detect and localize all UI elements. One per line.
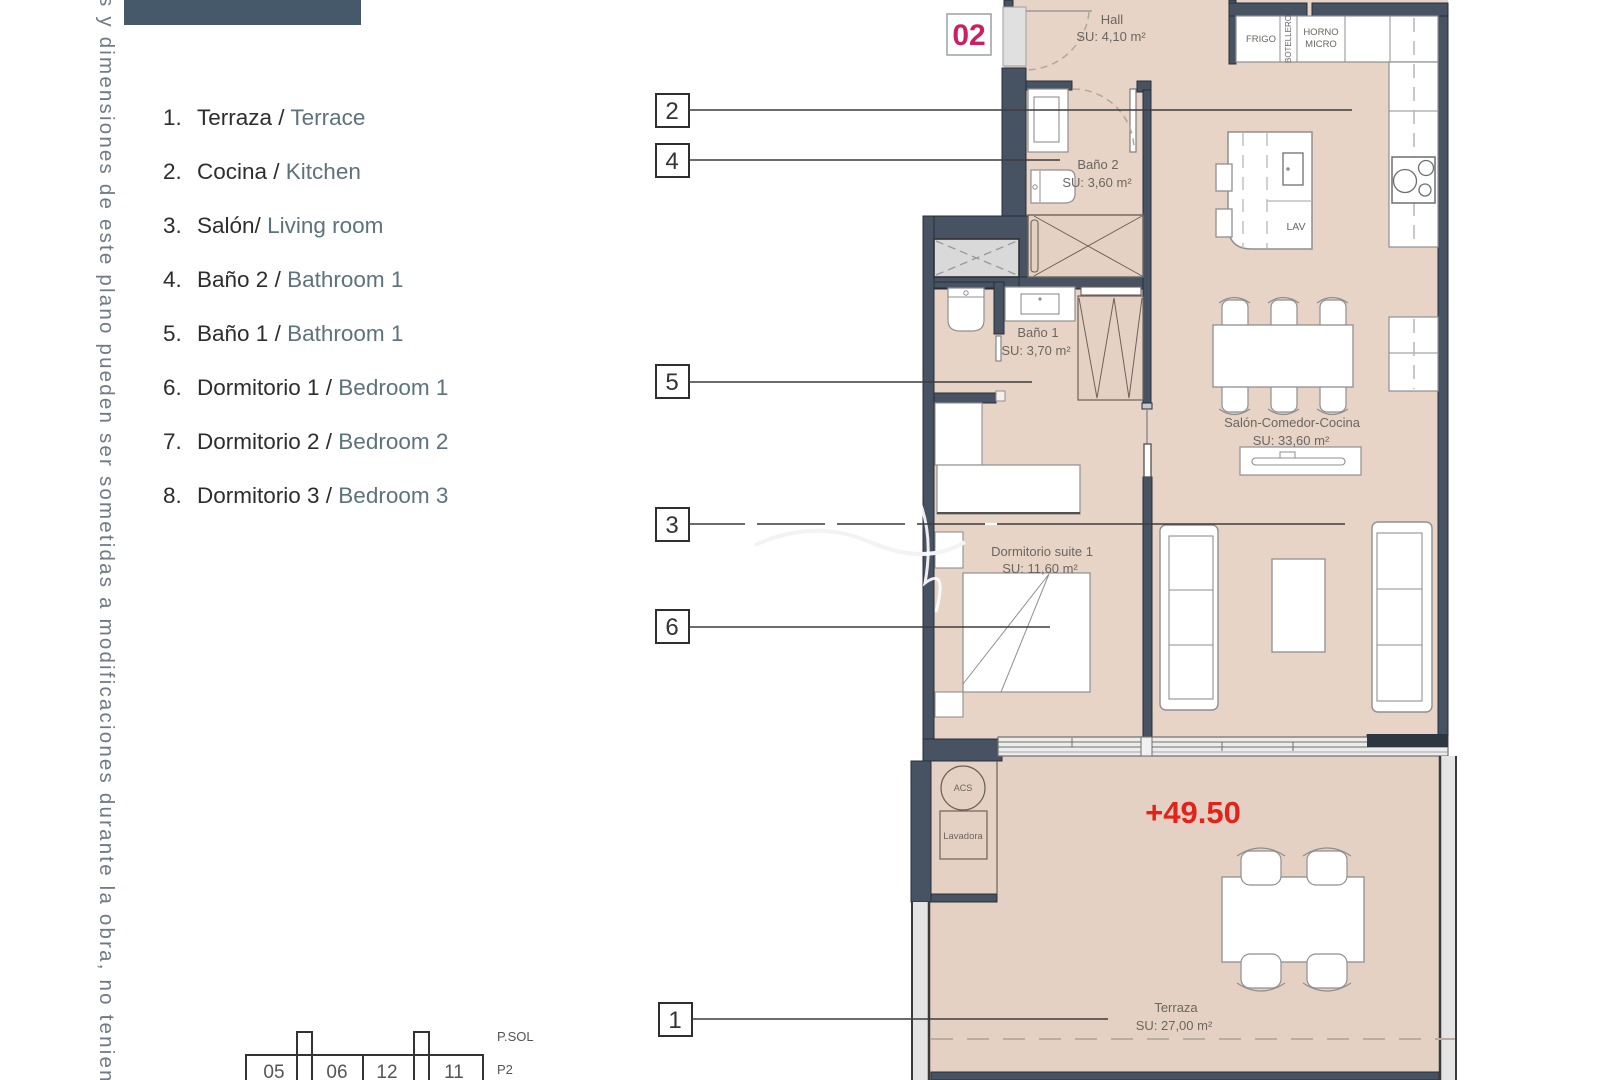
svg-text:12: 12 [376,1062,397,1080]
svg-text:02: 02 [952,19,985,52]
svg-text:1.: 1. [163,105,182,130]
svg-text:SU: 3,60 m²: SU: 3,60 m² [1062,175,1132,190]
svg-text:5.: 5. [163,321,182,346]
svg-text:LAV: LAV [1286,221,1305,233]
svg-text:Cocina / Kitchen: Cocina / Kitchen [197,159,361,184]
svg-text:ACS: ACS [954,783,973,793]
svg-text:8.: 8. [163,483,182,508]
svg-text:Baño 1: Baño 1 [1017,325,1058,340]
svg-text:2.: 2. [163,159,182,184]
svg-text:4.: 4. [163,267,182,292]
svg-text:06: 06 [326,1062,347,1080]
svg-text:1: 1 [668,1007,681,1034]
svg-text:SU: 27,00 m²: SU: 27,00 m² [1136,1018,1213,1033]
svg-text:Lavadora: Lavadora [943,831,983,842]
svg-text:Baño 1 / Bathroom 1: Baño 1 / Bathroom 1 [197,321,403,346]
svg-text:BOTELLERO: BOTELLERO [1284,15,1293,63]
svg-text:6.: 6. [163,375,182,400]
svg-text:Dormitorio 1 / Bedroom 1: Dormitorio 1 / Bedroom 1 [197,375,448,400]
svg-text:MICRO: MICRO [1305,39,1337,50]
svg-text:Salón/ Living room: Salón/ Living room [197,213,383,238]
svg-text:Dormitorio 3 / Bedroom 3: Dormitorio 3 / Bedroom 3 [197,483,448,508]
svg-text:Baño 2: Baño 2 [1077,157,1118,172]
svg-text:6: 6 [665,614,678,641]
svg-text:7.: 7. [163,429,182,454]
svg-text:SU: 33,60 m²: SU: 33,60 m² [1253,433,1330,448]
svg-text:Hall: Hall [1101,12,1124,27]
svg-text:3.: 3. [163,213,182,238]
svg-text:05: 05 [263,1062,284,1080]
svg-text:+49.50: +49.50 [1145,795,1241,830]
svg-text:SU: 3,70 m²: SU: 3,70 m² [1001,343,1071,358]
svg-text:Dormitorio suite 1: Dormitorio suite 1 [991,544,1093,559]
svg-text:SU: 4,10 m²: SU: 4,10 m² [1076,29,1146,44]
svg-text:HORNO: HORNO [1303,27,1338,38]
svg-text:4: 4 [665,148,678,175]
svg-text:Terraza: Terraza [1154,1000,1198,1015]
svg-text:Baño 2 / Bathroom 1: Baño 2 / Bathroom 1 [197,267,403,292]
svg-text:2: 2 [665,98,678,125]
svg-text:5: 5 [665,369,678,396]
svg-text:P2: P2 [497,1062,513,1077]
svg-text:Terraza / Terrace: Terraza / Terrace [197,105,365,130]
svg-text:11: 11 [444,1062,464,1080]
svg-text:P.SOL: P.SOL [497,1029,534,1044]
svg-text:Salón-Comedor-Cocina: Salón-Comedor-Cocina [1224,415,1361,430]
svg-text:Dormitorio 2 / Bedroom 2: Dormitorio 2 / Bedroom 2 [197,429,448,454]
svg-text:FRIGO: FRIGO [1246,34,1276,45]
svg-text:SU: 11,60 m²: SU: 11,60 m² [1002,561,1078,576]
svg-text:3: 3 [665,512,678,539]
svg-text:s y dimensiones de este plano: s y dimensiones de este plano pueden ser… [95,0,118,1080]
